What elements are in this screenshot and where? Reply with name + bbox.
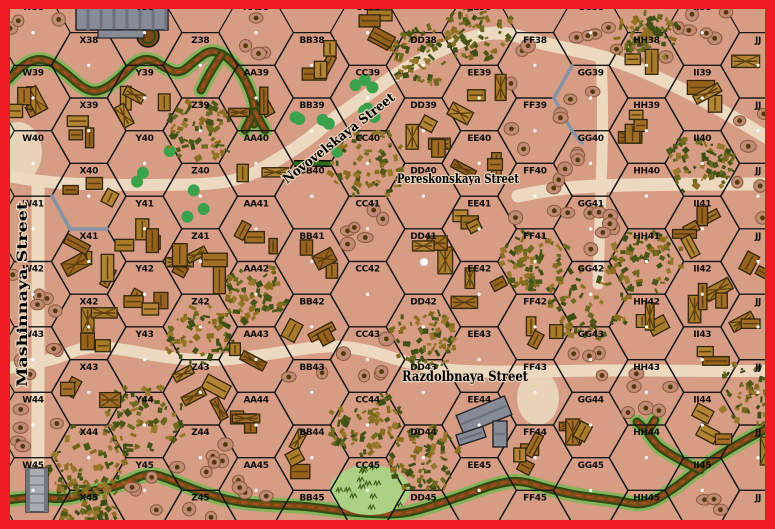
woods-clump xyxy=(661,42,666,47)
woods-clump xyxy=(65,435,70,442)
woods-clump xyxy=(148,420,153,426)
hex-center-dot xyxy=(254,96,257,99)
shellhole-center xyxy=(568,97,573,102)
hex-label: II44 xyxy=(693,396,711,406)
shellhole-center xyxy=(154,508,159,513)
hex-center-dot xyxy=(310,325,313,328)
woods-clump xyxy=(423,345,426,351)
hex-label: AA43 xyxy=(243,330,268,340)
building xyxy=(91,308,117,318)
shellhole-center xyxy=(223,442,228,447)
hex-center-dot xyxy=(199,456,202,459)
hex-label: FF45 xyxy=(523,494,547,504)
shellhole-center xyxy=(724,10,729,15)
hex-label: II41 xyxy=(693,199,711,209)
woods-clump xyxy=(434,79,439,86)
hex-center-dot xyxy=(422,195,425,198)
hex-label: Y43 xyxy=(134,330,153,340)
orchard-tree xyxy=(181,211,193,223)
hex-label: HH38 xyxy=(633,36,659,46)
shellhole-center xyxy=(574,35,579,40)
hex-center-dot xyxy=(143,96,146,99)
map-viewport: W38W39W40W41W42W43W44W45X38X39X40X41X42X… xyxy=(0,0,775,529)
building xyxy=(69,130,82,140)
shellhole-center xyxy=(600,373,605,378)
street-label-pereskonskaya: Pereskonskaya Street xyxy=(397,172,519,187)
woods-clump xyxy=(241,288,246,292)
hex-label: AA45 xyxy=(243,461,268,471)
hex-center-dot xyxy=(87,195,90,198)
hex-label: JJ xyxy=(754,167,761,177)
hex-label: JJ xyxy=(754,101,761,111)
hex-center-dot xyxy=(645,129,648,132)
woods-clump xyxy=(508,260,510,262)
woods-clump xyxy=(219,318,222,323)
building xyxy=(413,241,435,251)
woods-clump xyxy=(754,385,759,389)
woods-clump xyxy=(393,470,396,473)
woods-clump xyxy=(421,463,424,465)
woods-clump xyxy=(98,450,103,454)
hex-center-dot xyxy=(701,358,704,361)
hex-center-dot xyxy=(701,227,704,230)
hex-center-dot xyxy=(366,293,369,296)
hex-center-dot xyxy=(589,293,592,296)
shellhole-center xyxy=(379,369,384,374)
shellhole-center xyxy=(56,17,61,22)
hex-center-dot xyxy=(87,64,90,67)
hex-center-dot xyxy=(254,31,257,34)
hex-center-dot xyxy=(31,293,34,296)
hex-label: CC44 xyxy=(355,396,380,406)
woods-clump xyxy=(126,448,134,452)
woods-clump xyxy=(448,17,454,23)
woods-clump xyxy=(535,266,539,269)
hex-label: GG43 xyxy=(578,330,604,340)
woods-clump xyxy=(723,153,727,161)
orchard-tree xyxy=(188,184,200,196)
hex-label: Y41 xyxy=(134,199,153,209)
hex-center-dot xyxy=(533,129,536,132)
building xyxy=(629,110,642,119)
hex-label: Y44 xyxy=(134,396,153,406)
hex-label: X42 xyxy=(79,297,98,307)
woods-clump xyxy=(330,161,334,165)
hex-center-dot xyxy=(254,358,257,361)
hex-center-dot xyxy=(199,260,202,263)
building xyxy=(715,434,731,445)
hex-center-dot xyxy=(645,64,648,67)
hex-label: W39 xyxy=(22,69,44,79)
hex-center-dot xyxy=(199,64,202,67)
hex-label: BB43 xyxy=(299,363,324,373)
shellhole-center xyxy=(16,18,21,23)
woods-clump xyxy=(189,340,193,343)
hex-label: JJ xyxy=(754,232,761,242)
hex-label: DD41 xyxy=(410,232,436,242)
hex-center-dot xyxy=(422,64,425,67)
woods-clump xyxy=(682,137,688,142)
hex-label: W40 xyxy=(22,134,44,144)
hex-center-dot xyxy=(478,227,481,230)
woods-clump xyxy=(412,29,415,34)
shellhole-center xyxy=(204,470,209,475)
building xyxy=(100,393,121,408)
hex-center-dot xyxy=(143,293,146,296)
woods-clump xyxy=(473,51,478,56)
woods-clump xyxy=(480,18,483,21)
hex-label: X40 xyxy=(79,167,98,177)
woods-clump xyxy=(374,170,379,175)
shellhole-center xyxy=(760,216,765,221)
hex-label: DD39 xyxy=(410,101,436,111)
shellhole-center xyxy=(668,385,673,390)
woods-clump xyxy=(426,59,429,65)
woods-clump xyxy=(61,469,64,472)
shellhole-center xyxy=(513,215,518,220)
hex-label: W44 xyxy=(22,396,44,406)
building xyxy=(732,55,760,67)
woods-clump xyxy=(626,294,632,299)
hex-center-dot xyxy=(756,260,759,263)
shellhole-center xyxy=(175,465,180,470)
building xyxy=(432,140,445,158)
hex-label: X45 xyxy=(79,494,98,504)
hex-label: Z44 xyxy=(191,428,209,438)
hex-center-dot xyxy=(31,358,34,361)
victory-marker-dot xyxy=(420,258,428,266)
hex-label: AA39 xyxy=(243,69,268,79)
shellhole-center xyxy=(212,460,217,465)
hex-center-dot xyxy=(87,129,90,132)
shellhole-center xyxy=(614,47,619,52)
shellhole-center xyxy=(712,36,717,41)
building xyxy=(158,94,170,111)
shellhole-center xyxy=(35,302,40,307)
woods-clump xyxy=(404,483,410,487)
hex-center-dot xyxy=(422,391,425,394)
hex-center-dot xyxy=(87,456,90,459)
woods-clump xyxy=(352,193,355,198)
woods-clump xyxy=(637,270,640,278)
woods-clump xyxy=(170,341,173,346)
hex-label: BB42 xyxy=(299,297,324,307)
shellhole-center xyxy=(632,384,637,389)
hex-label: Z42 xyxy=(191,297,209,307)
shellhole-center xyxy=(51,346,56,351)
hex-center-dot xyxy=(422,129,425,132)
shellhole-center xyxy=(735,180,740,185)
hex-center-dot xyxy=(31,162,34,165)
hex-center-dot xyxy=(645,260,648,263)
woods-clump xyxy=(458,12,461,20)
woods-clump xyxy=(100,499,107,506)
woods-clump xyxy=(269,304,273,309)
woods-clump xyxy=(154,400,160,404)
building xyxy=(406,124,418,149)
hex-center-dot xyxy=(143,162,146,165)
hex-label: BB41 xyxy=(299,232,324,242)
shellhole-center xyxy=(597,210,602,215)
woods-clump xyxy=(336,160,339,165)
woods-clump xyxy=(54,482,56,485)
woods-clump xyxy=(74,485,77,488)
woods-clump xyxy=(423,328,429,334)
building xyxy=(124,296,143,308)
hex-label: BB44 xyxy=(299,428,324,438)
hex-label: HH42 xyxy=(633,297,659,307)
hex-label: Y45 xyxy=(134,461,153,471)
woods-clump xyxy=(760,396,763,402)
hex-center-dot xyxy=(478,31,481,34)
shellhole-center xyxy=(587,354,592,359)
woods-clump xyxy=(707,160,711,164)
hex-label: JJ xyxy=(754,297,761,307)
hex-label: GG41 xyxy=(578,199,604,209)
woods-clump xyxy=(225,294,231,300)
building xyxy=(314,61,326,78)
hex-center-dot xyxy=(478,423,481,426)
woods-clump xyxy=(378,156,382,160)
hex-center-dot xyxy=(254,293,257,296)
woods-clump xyxy=(225,313,228,317)
woods-clump xyxy=(220,144,225,146)
hex-label: FF40 xyxy=(523,167,547,177)
hex-center-dot xyxy=(254,423,257,426)
woods-clump xyxy=(548,301,552,304)
hex-center-dot xyxy=(701,489,704,492)
hex-label: X43 xyxy=(79,363,98,373)
woods-clump xyxy=(195,126,199,131)
hex-label: X38 xyxy=(79,36,98,46)
hex-center-dot xyxy=(701,162,704,165)
hex-label: II42 xyxy=(693,265,711,275)
hex-label: Y40 xyxy=(134,134,153,144)
shellhole-center xyxy=(552,208,557,213)
building xyxy=(488,159,503,171)
shellhole-center xyxy=(352,225,357,230)
woods-clump xyxy=(212,319,217,325)
hex-label: DD44 xyxy=(410,428,436,438)
hex-center-dot xyxy=(589,96,592,99)
hex-center-dot xyxy=(756,391,759,394)
woods-clump xyxy=(615,256,617,262)
hex-center-dot xyxy=(589,423,592,426)
woods-clump xyxy=(667,242,671,245)
building xyxy=(81,333,95,350)
street-label-razdolbnaya: Razdolbnaya Street xyxy=(402,369,529,385)
hex-label: W45 xyxy=(22,461,44,471)
woods-clump xyxy=(138,421,143,424)
building xyxy=(468,90,485,101)
building xyxy=(300,240,312,255)
hex-label: GG42 xyxy=(578,265,604,275)
woods-clump xyxy=(678,264,684,269)
shellhole-center xyxy=(54,421,59,426)
shellhole-center xyxy=(341,351,346,356)
hex-center-dot xyxy=(87,260,90,263)
shellhole-center xyxy=(563,166,568,171)
hex-label: HH39 xyxy=(633,101,659,111)
hex-center-dot xyxy=(143,423,146,426)
woods-clump xyxy=(594,295,599,299)
street-label-mashinnaya: Mashinnaya Street xyxy=(15,201,31,387)
woods-clump xyxy=(182,343,186,347)
woods-clump xyxy=(678,246,683,251)
shellhole-center xyxy=(600,230,605,235)
hex-center-dot xyxy=(199,325,202,328)
hex-label: X44 xyxy=(79,428,98,438)
building xyxy=(359,15,380,27)
shellhole-center xyxy=(746,144,751,149)
shellhole-center xyxy=(362,373,367,378)
shellhole-center xyxy=(130,485,135,490)
building xyxy=(101,254,114,281)
hex-label: X41 xyxy=(79,232,98,242)
woods-clump xyxy=(529,265,532,272)
woods-clump xyxy=(93,464,101,471)
woods-clump xyxy=(368,409,374,415)
shellhole-center xyxy=(243,43,248,48)
woods-clump xyxy=(401,314,404,319)
hex-center-dot xyxy=(310,129,313,132)
hex-label: DD38 xyxy=(410,36,436,46)
hex-center-dot xyxy=(310,260,313,263)
hex-center-dot xyxy=(254,162,257,165)
woods-clump xyxy=(497,19,502,27)
shellhole-center xyxy=(256,51,261,56)
woods-clump xyxy=(536,279,543,283)
shellhole-center xyxy=(558,115,563,120)
hex-center-dot xyxy=(701,423,704,426)
hex-label: CC41 xyxy=(355,199,380,209)
woods-clump xyxy=(528,284,534,291)
hex-center-dot xyxy=(143,489,146,492)
woods-clump xyxy=(206,333,214,339)
hex-label: FF41 xyxy=(523,232,547,242)
woods-clump xyxy=(480,25,485,32)
building xyxy=(95,340,110,352)
woods-clump xyxy=(396,437,404,442)
shellhole-center xyxy=(509,81,514,86)
hex-center-dot xyxy=(589,358,592,361)
building xyxy=(438,247,453,274)
hex-center-dot xyxy=(701,31,704,34)
hex-label: Z41 xyxy=(191,232,209,242)
hex-label: HH45 xyxy=(633,494,659,504)
shellhole-center xyxy=(363,235,368,240)
hex-label: JJ xyxy=(754,36,761,46)
woods-clump xyxy=(660,282,665,284)
woods-clump xyxy=(557,254,562,257)
hex-label: EE40 xyxy=(467,134,491,144)
shellhole-center xyxy=(380,216,385,221)
hex-center-dot xyxy=(31,96,34,99)
woods-clump xyxy=(220,150,224,154)
woods-clump xyxy=(711,144,714,146)
stone-building-EE44-2 xyxy=(493,421,507,447)
hex-center-dot xyxy=(422,325,425,328)
hex-label: CC45 xyxy=(355,461,380,471)
shellhole-center xyxy=(606,25,611,30)
hex-label: JJ xyxy=(754,428,761,438)
hex-center-dot xyxy=(533,260,536,263)
hex-center-dot xyxy=(478,358,481,361)
hex-label: BB45 xyxy=(299,494,324,504)
hex-center-dot xyxy=(310,195,313,198)
shellhole-center xyxy=(149,475,154,480)
woods-clump xyxy=(673,144,678,149)
hex-label: AA44 xyxy=(243,396,268,406)
hex-center-dot xyxy=(366,96,369,99)
map-content: W38W39W40W41W42W43W44W45X38X39X40X41X42X… xyxy=(0,0,775,529)
woods-clump xyxy=(104,454,107,458)
woods-clump xyxy=(398,330,403,335)
hex-center-dot xyxy=(533,391,536,394)
woods-clump xyxy=(410,455,416,458)
shellhole-center xyxy=(18,407,23,412)
hex-center-dot xyxy=(310,391,313,394)
building xyxy=(142,303,159,315)
hex-center-dot xyxy=(756,64,759,67)
shellhole-center xyxy=(571,351,576,356)
hex-label: CC43 xyxy=(355,330,380,340)
woods-clump xyxy=(201,144,208,148)
hex-label: GG39 xyxy=(578,69,604,79)
woods-clump xyxy=(217,112,220,116)
woods-clump xyxy=(371,442,379,449)
building xyxy=(634,120,647,132)
woods-clump xyxy=(556,276,564,281)
building xyxy=(173,244,188,266)
hex-label: Y42 xyxy=(134,265,153,275)
building xyxy=(625,54,640,65)
hex-center-dot xyxy=(756,129,759,132)
woods-clump xyxy=(353,162,356,166)
shellhole-center xyxy=(712,497,717,502)
hex-center-dot xyxy=(478,293,481,296)
game-map[interactable]: W38W39W40W41W42W43W44W45X38X39X40X41X42X… xyxy=(0,0,775,529)
hex-label: HH41 xyxy=(633,232,659,242)
hex-label: EE41 xyxy=(467,199,491,209)
hex-label: FF44 xyxy=(523,428,547,438)
woods-clump xyxy=(430,82,433,86)
hex-center-dot xyxy=(589,227,592,230)
hex-center-dot xyxy=(87,325,90,328)
orchard-tree xyxy=(317,114,329,126)
building xyxy=(324,41,336,56)
building xyxy=(18,87,31,104)
building xyxy=(86,178,102,190)
hex-label: GG45 xyxy=(578,461,604,471)
shellhole-center xyxy=(657,408,662,413)
hex-center-dot xyxy=(533,64,536,67)
building xyxy=(708,95,721,112)
hex-center-dot xyxy=(366,31,369,34)
woods-clump xyxy=(116,475,120,480)
shellhole-center xyxy=(254,16,259,21)
shellhole-center xyxy=(718,507,723,512)
hex-label: HH43 xyxy=(633,363,659,373)
woods-clump xyxy=(453,47,458,53)
building xyxy=(698,283,707,309)
shellhole-center xyxy=(187,507,192,512)
woods-clump xyxy=(447,350,451,354)
shellhole-center xyxy=(521,146,526,151)
woods-clump xyxy=(193,314,196,320)
woods-clump xyxy=(413,76,417,81)
shellhole-center xyxy=(588,247,593,252)
